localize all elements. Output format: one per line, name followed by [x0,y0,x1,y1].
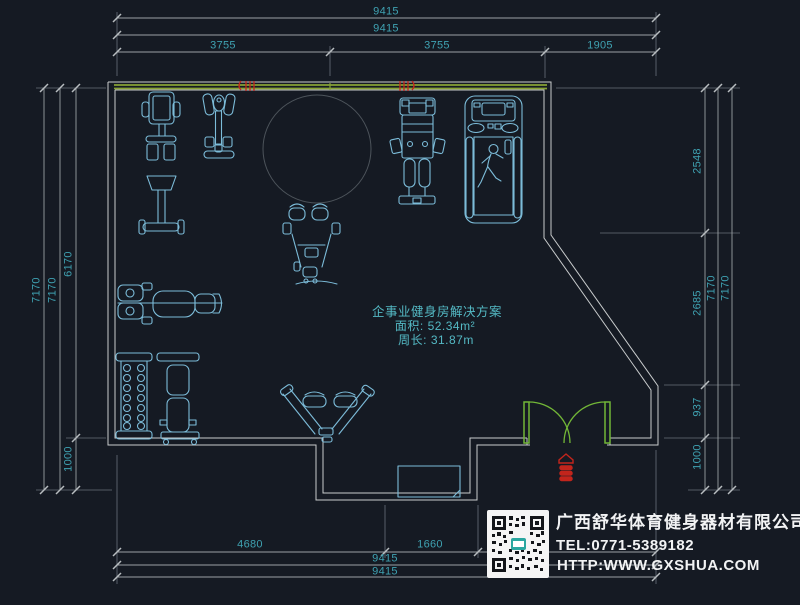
column-circle [263,95,371,203]
pec-deck-machine [283,204,340,284]
dim-right-2548: 2548 [693,148,704,174]
dim-bottom-9415-a: 9415 [372,554,398,565]
room-title: 企事业健身房解决方案 [372,306,502,319]
dim-right-7170-b: 7170 [721,275,732,301]
floor-plan-canvas: 9415 9415 3755 3755 1905 7170 7170 6170 … [0,0,800,605]
elliptical-trainer [202,93,235,158]
entrance-door [524,402,610,443]
dimension-extension-lines [36,12,740,584]
runner-figure [478,145,503,188]
wall-outline [108,82,658,500]
dim-left-7170-b: 7170 [48,277,59,303]
dim-right-1000: 1000 [693,444,704,470]
dim-bottom-4680: 4680 [237,540,263,551]
dim-right-2685: 2685 [693,290,704,316]
company-name: 广西舒华体育健身器材有限公司 [556,514,800,531]
dim-bottom-9415-b: 9415 [372,567,398,578]
dim-top-3755-b: 3755 [424,41,450,52]
v-row-machine [279,384,375,442]
dimension-ticks [40,14,736,581]
treadmill-with-runner [465,96,522,223]
window-wall-green [114,83,547,90]
dim-top-1905: 1905 [587,41,613,52]
dim-left-6170: 6170 [64,251,75,277]
room-area: 面积: 52.34m² [395,320,475,332]
company-phone: TEL:0771-5389182 [556,538,694,553]
entrance-marker-icon [559,454,573,481]
dim-left-7170-a: 7170 [32,277,43,303]
vertical-press-machine [139,92,184,234]
dumbbell-rack [116,353,152,439]
room-perimeter: 周长: 31.87m [398,334,474,346]
dim-bottom-1660: 1660 [417,540,443,551]
dim-right-7170-a: 7170 [707,275,718,301]
multi-station-machine [390,98,446,204]
bench-press [118,283,222,324]
dim-right-937: 937 [693,397,704,416]
company-website: HTTP:WWW.GXSHUA.COM [557,558,760,573]
qr-code [487,510,549,578]
dim-top-9415-a: 9415 [373,7,399,18]
adjustable-bench [157,353,199,445]
dim-left-1000: 1000 [64,446,75,472]
dim-top-3755-a: 3755 [210,41,236,52]
dim-top-9415-b: 9415 [373,24,399,35]
alcove-desk [398,466,460,497]
